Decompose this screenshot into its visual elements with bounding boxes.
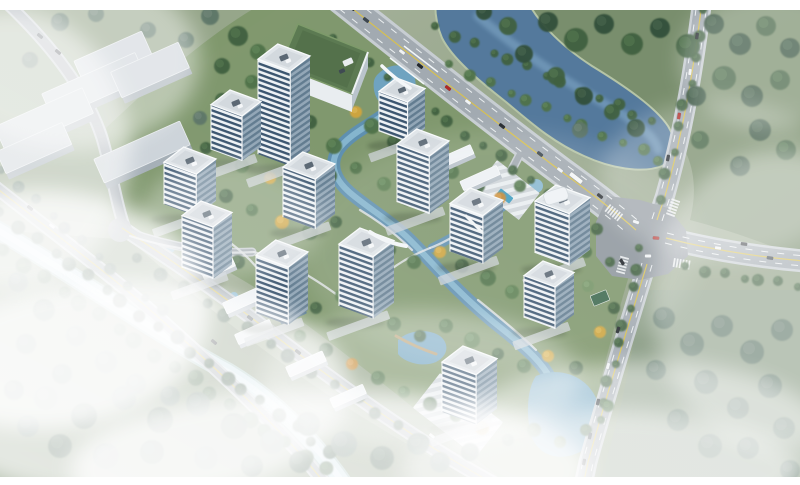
frame-border-top <box>0 0 800 10</box>
frame-border-bottom <box>0 477 800 485</box>
haze-veil <box>0 0 800 485</box>
aerial-site-plan-rendering <box>0 0 800 485</box>
rendering-frame <box>0 0 800 485</box>
